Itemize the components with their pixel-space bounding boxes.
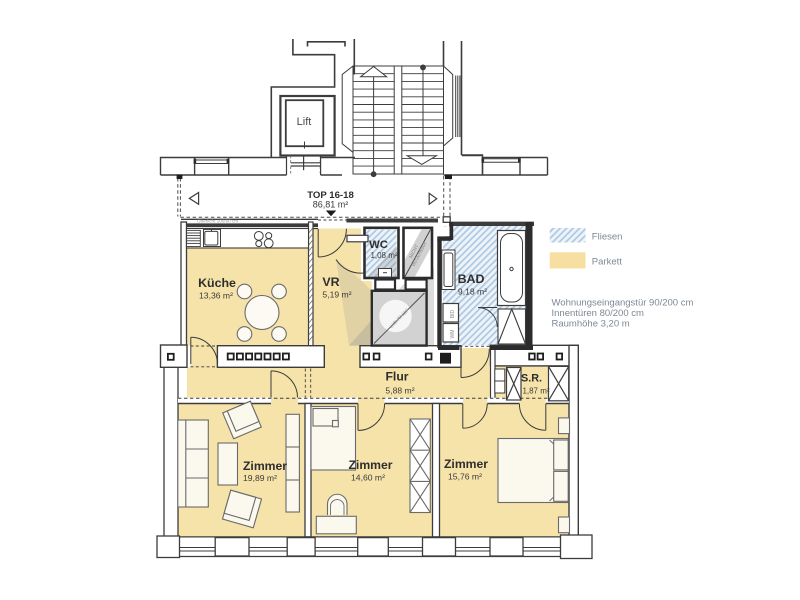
- svg-text:19,89 m²: 19,89 m²: [243, 473, 277, 483]
- svg-text:Oberlicht 100/60 cm: Oberlicht 100/60 cm: [197, 219, 238, 224]
- svg-text:14,60 m²: 14,60 m²: [351, 473, 385, 483]
- svg-text:Parkett: Parkett: [592, 257, 622, 268]
- svg-text:Fliesen: Fliesen: [592, 232, 623, 243]
- svg-text:Zimmer: Zimmer: [243, 459, 287, 473]
- svg-text:Zimmer: Zimmer: [348, 458, 392, 472]
- svg-text:Innentüren 80/200 cm: Innentüren 80/200 cm: [552, 308, 645, 319]
- svg-text:13,36 m²: 13,36 m²: [199, 291, 233, 301]
- svg-text:Wohnungseingangstür 90/200 cm: Wohnungseingangstür 90/200 cm: [552, 298, 694, 309]
- svg-text:WM: WM: [450, 330, 456, 339]
- svg-text:5,88 m²: 5,88 m²: [385, 386, 414, 396]
- svg-text:9,18 m²: 9,18 m²: [458, 287, 487, 297]
- svg-text:Lift: Lift: [297, 116, 312, 128]
- svg-text:Raumhöhe 3,20 m: Raumhöhe 3,20 m: [552, 319, 630, 330]
- svg-text:1,08 m²: 1,08 m²: [370, 251, 397, 260]
- svg-text:15,76 m²: 15,76 m²: [448, 472, 482, 482]
- svg-text:Zimmer: Zimmer: [444, 457, 488, 471]
- svg-text:Küche: Küche: [198, 276, 236, 290]
- svg-text:Flur: Flur: [385, 370, 408, 384]
- svg-text:86,81 m²: 86,81 m²: [313, 200, 349, 210]
- svg-text:BID: BID: [450, 309, 456, 318]
- svg-text:VR: VR: [322, 275, 339, 289]
- svg-text:S.R.: S.R.: [521, 373, 542, 385]
- svg-text:5,19 m²: 5,19 m²: [322, 290, 351, 300]
- svg-text:1,87 m²: 1,87 m²: [522, 387, 549, 396]
- svg-text:WC: WC: [369, 239, 388, 251]
- svg-text:BAD: BAD: [458, 272, 485, 286]
